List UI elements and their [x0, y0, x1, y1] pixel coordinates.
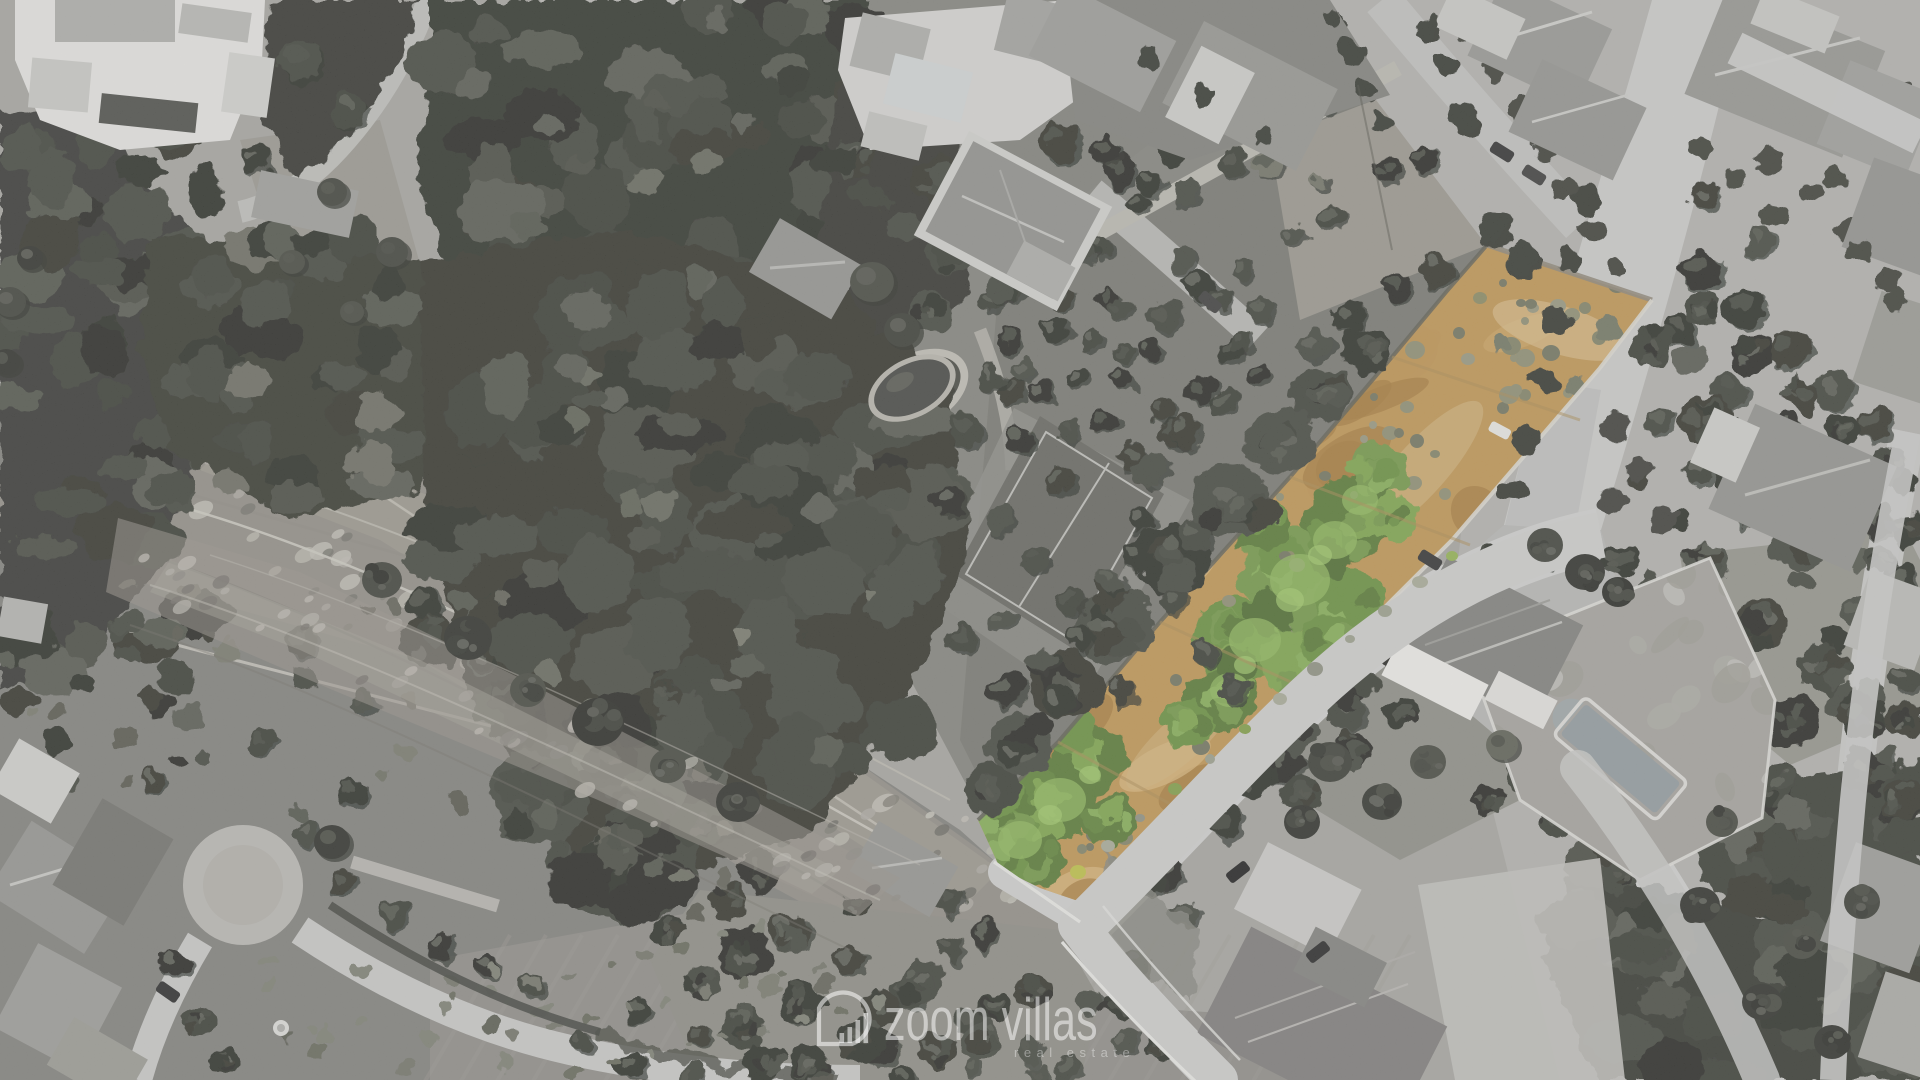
svg-text:zoom villas: zoom villas [884, 987, 1098, 1054]
svg-text:real estate: real estate [1014, 1045, 1135, 1060]
